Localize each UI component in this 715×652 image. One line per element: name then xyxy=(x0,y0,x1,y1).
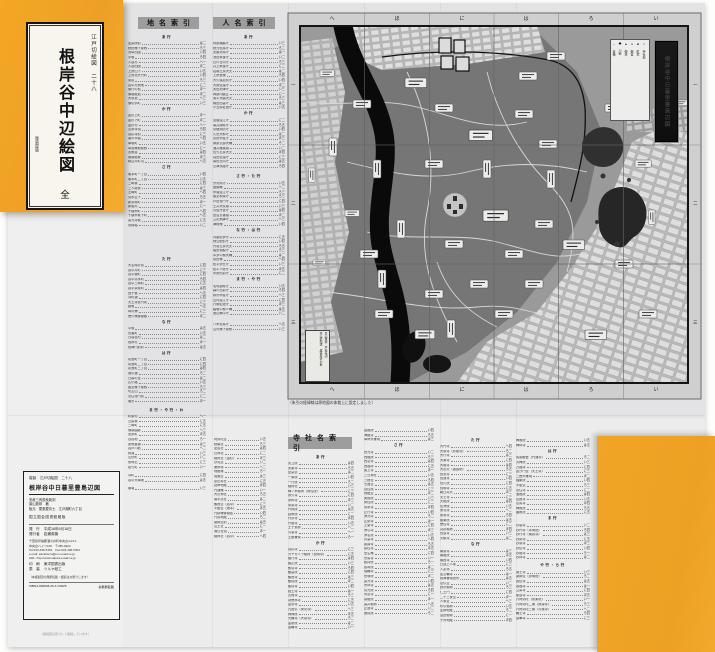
index-row: 浄心寺ほ三 xyxy=(364,528,434,533)
index-row: 大円寺へ四 xyxy=(440,444,512,449)
index-row: 福聚院い四 xyxy=(516,478,590,483)
place-index-column: あ行愛染院前は二秋田様下屋敷ろ三浅草田圃い四芋坂ろ四入谷村へ一入谷田圃ほ二上野山… xyxy=(128,33,206,491)
index-row: 愛染堂は二 xyxy=(288,470,354,475)
index-section-label: さ行 xyxy=(364,444,434,448)
index-row: 大塚道へ三 xyxy=(128,96,206,101)
index-row: 草間様抱屋敷に一 xyxy=(128,145,206,150)
index-row: 谷中村飛地に二 xyxy=(128,82,206,87)
index-row: 鍋島肥前守い四 xyxy=(213,239,285,244)
cover-title-label: 江戸切絵図 二十八 根岸谷中辺絵図 尾張屋版 全 xyxy=(26,22,104,210)
index-row: 願成寺い四 xyxy=(288,584,354,589)
index-row: 金杉上町ほ一 xyxy=(128,113,206,118)
index-row: 六阿弥陀（常楽院）い一 xyxy=(516,597,590,602)
index-row: 長運寺い四 xyxy=(440,476,512,481)
index-row: 新茶屋町ほ一 xyxy=(128,199,206,204)
person-index-column: あ行阿部播磨守い三秋元但馬守ろ二安藤対馬守は一池田筑後守い二石川日向守ろ三井上筑… xyxy=(213,33,285,331)
index-row: 加藤遠江守に二 xyxy=(213,118,285,123)
index-row: 薬王寺い三 xyxy=(516,570,590,575)
temple-index-column-3: た行大円寺へ四大泉寺（妙隆寺）ろ二大行寺は三大乗寺に四大雄寺は四大黒天（護国院）… xyxy=(440,436,512,622)
index-row: 梅照院ろ五 xyxy=(516,506,590,511)
index-section-label: ま行 xyxy=(516,517,590,521)
publisher-value: 岩瀬英機 xyxy=(44,532,58,537)
index-row: 西念寺は四 xyxy=(364,459,434,464)
index-row: 町屋村へ一 xyxy=(128,414,206,419)
index-row: 法住寺門前に二 xyxy=(128,394,206,399)
map-grid-label: ほ xyxy=(394,386,399,393)
temple-index-header: 寺社名索引 xyxy=(288,437,352,449)
index-row: 善光寺い四 xyxy=(364,578,434,583)
index-row: 久世大和守は二 xyxy=(213,132,285,137)
index-row: 善性寺ほ五 xyxy=(364,546,434,551)
index-row: 沼田稲荷に一 xyxy=(440,613,512,618)
index-row: 妙円寺（本明院）ろ四 xyxy=(516,527,590,532)
index-row: 永称寺ほ三 xyxy=(288,498,354,503)
index-row: 山内遠江守に四 xyxy=(213,297,285,302)
map-colophon-text: 井山能知述 尾張屋清七板 xyxy=(318,332,323,380)
index-row: 酒井雅楽頭い二 xyxy=(213,145,285,150)
map-panel: へ ほ に は ろ い へ ほ に は ろ い 一 二 三 一 二 三 □ 寺社… xyxy=(287,12,702,400)
index-row: 子育地蔵ほ四 xyxy=(440,617,512,622)
index-row: 妙行寺（南谷寺）は三 xyxy=(516,532,590,537)
index-row: 阿弥陀堂い五 xyxy=(214,437,266,442)
index-row: 妙雲寺い二 xyxy=(516,523,590,528)
index-row: 亀の甲橋へ四 xyxy=(128,136,206,141)
index-row: 金剛院は二 xyxy=(288,621,354,626)
index-row: 長安寺に三 xyxy=(440,472,512,477)
index-row: 善光寺坂に五 xyxy=(128,218,206,223)
cover-title: 根岸谷中辺絵図 xyxy=(53,48,77,174)
index-row: 実相院い三 xyxy=(364,496,434,501)
index-row: 立花飛騨守へ三 xyxy=(213,217,285,222)
index-row: 安藤対馬守は一 xyxy=(213,50,285,55)
index-row: 松平伊豆守い三 xyxy=(213,262,285,267)
index-row: 龍谷寺ほ五 xyxy=(516,593,590,598)
index-row: 延命地蔵ほ四 xyxy=(214,483,266,488)
index-row: 宗善寺い一 xyxy=(364,555,434,560)
index-row: 大泉寺（妙隆寺）ろ二 xyxy=(440,449,512,454)
index-row: 如意輪寺は一 xyxy=(440,571,512,576)
index-row: 円妙寺ほ四 xyxy=(288,516,354,521)
index-row: 三崎町に五 xyxy=(128,423,206,428)
index-row: 土井大炊頭い三 xyxy=(213,203,285,208)
map-grid-label: ろ xyxy=(588,386,593,393)
index-row: 毛利讃岐守い五 xyxy=(213,284,285,289)
index-row: 入定塚ろ五 xyxy=(440,567,512,572)
address-line: URL: http://www.sakura.email.ne.jp xyxy=(29,556,114,560)
index-row: 秋元但馬守ろ二 xyxy=(213,46,285,51)
index-row: 二十三夜堂ほ一 xyxy=(440,594,512,599)
temple-index-column-2: 金蔵院い四海蔵寺ろ五幸神大権現は三さ行西光寺い二西蔵院ろ三西念寺は四西福寺に五最… xyxy=(364,428,434,615)
index-row: 円珠院は五 xyxy=(288,507,354,512)
index-row: 南泉寺は三 xyxy=(440,548,512,553)
index-row: 柴田日向守は五 xyxy=(213,159,285,164)
index-row: 島津淡路守ろ四 xyxy=(213,164,285,169)
index-row: 徳性寺に二 xyxy=(440,522,512,527)
map-grid-label: ほ xyxy=(394,15,399,22)
index-row: 青雲寺へ四 xyxy=(364,537,434,542)
index-row: 長明寺に五 xyxy=(440,485,512,490)
cover-volume: 全 xyxy=(60,187,70,201)
index-row: 山王社に一 xyxy=(214,524,266,529)
map-grid-label: い xyxy=(653,15,658,22)
index-row: 惣構堀い二 xyxy=(128,222,206,227)
index-row: 大名時計前に四 xyxy=(128,263,206,268)
index-row: 正行寺い四 xyxy=(364,509,434,514)
map-grid-label: 二 xyxy=(693,201,698,207)
index-row: 新堀村に一 xyxy=(128,204,206,209)
index-row: 朝日弁天ほ三 xyxy=(440,490,512,495)
index-row: 金嶺寺い五 xyxy=(288,602,354,607)
index-row: 藤堂様下屋敷ろ三 xyxy=(128,385,206,390)
index-row: 柳通い三 xyxy=(128,451,206,456)
index-row: 御行の松ほ一 xyxy=(128,87,206,92)
index-row: 駒込片町境へ五 xyxy=(128,159,206,164)
index-row: 安立院は四 xyxy=(288,461,354,466)
index-row: 願正院い三 xyxy=(288,561,354,566)
index-row: 時の鐘に三 xyxy=(128,309,206,314)
index-row: 立善寺に四 xyxy=(516,588,590,593)
index-row: カヤカヅラ稲荷（長明寺）に五 xyxy=(288,552,354,557)
index-section-label: ま行・や行・わ xyxy=(128,409,206,413)
index-row: 初音町三丁目は四 xyxy=(128,366,206,371)
index-row: 日蓮上人塚に三 xyxy=(440,562,512,567)
map-grid-label: 一 xyxy=(693,82,698,88)
index-row: 長者町い五 xyxy=(128,331,206,336)
index-row: 馬頭観音（円通寺）ろ二 xyxy=(516,455,590,460)
index-row: 修性院に二 xyxy=(364,500,434,505)
map-title: 根岸谷中日暮里豊島辺図 xyxy=(663,56,671,128)
index-row: 三島神社い五 xyxy=(364,473,434,478)
index-row: 法昌寺い五 xyxy=(516,497,590,502)
index-row: 光輪寺（大泉寺）ろ二 xyxy=(288,616,354,621)
colophon-orig3: 板元 尾張屋清七 江戸麹町六丁目 xyxy=(29,507,114,512)
legend-item: ■ 町家 xyxy=(635,42,641,118)
index-row: 円隆寺い五 xyxy=(288,521,354,526)
index-row: 日暮里村は二 xyxy=(128,335,206,340)
publisher-label: 発行者 xyxy=(29,532,40,537)
colophon-series: 複製 江戸切絵図 二十八 xyxy=(29,476,114,481)
colophon-source: 国立国会図書館蔵版 xyxy=(29,515,114,520)
index-row: 金輪寺い一 xyxy=(288,625,354,630)
index-row: 南昌寺い四 xyxy=(440,558,512,563)
index-row: 養伝寺は五 xyxy=(516,579,590,584)
index-row: 黒鍬谷は四 xyxy=(128,150,206,155)
footnote: （複製図は原寸にて複製しています） xyxy=(40,632,91,636)
index-row: 金蔵院い四 xyxy=(364,428,434,433)
index-row: 宗林寺は五 xyxy=(364,583,434,588)
index-row: 正慶寺は一 xyxy=(364,519,434,524)
legend-item: ◆ 川筋 xyxy=(617,42,623,118)
index-section-label: た行 xyxy=(128,258,206,262)
index-row: 法善寺ほ四 xyxy=(516,501,590,506)
index-row: 池田筑後守い二 xyxy=(213,55,285,60)
index-row: 天王寺に三 xyxy=(440,495,512,500)
index-row: 円通庵い一 xyxy=(214,488,266,493)
index-row: 総持院ろ一 xyxy=(364,560,434,565)
index-row: 安楽寺ろ五 xyxy=(288,466,354,471)
index-row: 天王寺表門前に三 xyxy=(128,300,206,305)
map-grid-label: 三 xyxy=(291,320,296,326)
index-row: 法住寺に二 xyxy=(516,487,590,492)
index-row: 梅翁院い五 xyxy=(516,438,590,443)
index-row: 観音寺は三 xyxy=(288,575,354,580)
index-row: 夜啼石に三 xyxy=(128,460,206,465)
temple-index-column-1: あ行安立院は四安楽寺ろ五愛染堂は二一乗院い四一行院ろ二稲荷社い三梅ノ木稲荷（修性… xyxy=(288,453,354,630)
index-row: 自性院に三 xyxy=(364,487,434,492)
index-row: 東覚寺へ二 xyxy=(440,508,512,513)
index-row: 谷戸川筋へ二 xyxy=(128,446,206,451)
index-row: 上野山下い五 xyxy=(128,69,206,74)
index-row: 野沢稲荷ろ三 xyxy=(440,585,512,590)
index-section-label: た行 xyxy=(440,439,512,443)
colophon-title: 根岸谷中日暮里豊島辺図 xyxy=(29,483,114,495)
index-section-label: や行・ら行 xyxy=(516,564,590,568)
index-row: 上聖寺に四 xyxy=(364,523,434,528)
index-row: 天眼寺は二 xyxy=(440,536,512,541)
index-row: 井上筑後守に二 xyxy=(213,64,285,69)
map-grid-label: は xyxy=(523,15,528,22)
index-row: 閻魔堂は三 xyxy=(214,474,266,479)
index-row: 三峰社ろ四 xyxy=(364,477,434,482)
index-row: 稲荷社（谷中）へ四 xyxy=(214,533,266,538)
index-row: 三人屋敷は三 xyxy=(128,186,206,191)
index-row: 観智院に四 xyxy=(288,570,354,575)
map-grid-label: に xyxy=(459,15,464,22)
index-row: 阿部播磨守い三 xyxy=(213,41,285,46)
index-row: 突抜稲荷ほ四 xyxy=(440,527,512,532)
index-section-label: は行 xyxy=(516,450,590,454)
index-row: 観音堂（谷中）に三 xyxy=(214,501,266,506)
index-row: 岡部内膳正に一 xyxy=(213,92,285,97)
index-row: 大乗寺に四 xyxy=(440,458,512,463)
index-row: 九品仏（東覚寺）へ三 xyxy=(288,607,354,612)
legend-item: □ 寺社地 xyxy=(641,42,647,118)
index-row: 畑中通ろ二 xyxy=(128,371,206,376)
index-row: 幸神大権現は三 xyxy=(364,437,434,442)
index-row: 秋葉社ろ三 xyxy=(214,442,266,447)
index-row: 入谷田圃ほ二 xyxy=(128,64,206,69)
index-row: 寺町に四 xyxy=(128,473,206,478)
index-row: 芝崎町へ四 xyxy=(128,190,206,195)
index-row: 谷中大車坂は五 xyxy=(128,478,206,483)
index-row: 地蔵尊ろ一 xyxy=(214,469,266,474)
index-section-label: か行 xyxy=(128,108,206,112)
temple-index-column-0: 阿弥陀堂い五秋葉社ろ三愛宕社は四石神社に二稲荷社（金杉）ほ三妙見堂い二庚申塚へ二… xyxy=(214,437,266,538)
index-row: 門前地蔵ろ二 xyxy=(214,515,266,520)
index-row: 妙伝寺い四 xyxy=(516,546,590,551)
index-row: 万福寺に四 xyxy=(516,464,590,469)
index-section-label: ま行・や行 xyxy=(213,278,285,282)
index-row: 清水堂下ろ五 xyxy=(128,195,206,200)
index-row: 誠諦寺ろ五 xyxy=(364,542,434,547)
map-grid-label: へ xyxy=(329,386,334,393)
map-grid-label: 三 xyxy=(693,320,698,326)
index-row: 丹羽左京大夫ろ五 xyxy=(213,244,285,249)
index-row: 七面堂は五 xyxy=(364,482,434,487)
cover-publisher-mark: 尾張屋版 xyxy=(34,136,40,152)
index-row: 玄照寺ろ三 xyxy=(288,593,354,598)
index-row: 一行院ろ二 xyxy=(288,479,354,484)
index-row: 寿永寺ほ四 xyxy=(364,505,434,510)
index-row: 栄泉寺い二 xyxy=(288,502,354,507)
index-row: 願行寺は四 xyxy=(288,556,354,561)
index-row: 妙泉寺ほ三 xyxy=(516,541,590,546)
index-row: 妙見堂い二 xyxy=(214,460,266,465)
index-row: 真田信濃守に三 xyxy=(213,155,285,160)
index-row: 上野北大門町い四 xyxy=(128,73,206,78)
index-row: 興禅院ほ五 xyxy=(288,611,354,616)
index-row: 輪王寺ろ四 xyxy=(516,611,590,616)
legend-item: ─ 道橋 xyxy=(611,42,617,118)
index-row: 谷中片町に三 xyxy=(128,268,206,273)
index-row: 布引稲荷い五 xyxy=(440,604,512,609)
index-row: 佐竹右京大夫ほ四 xyxy=(213,150,285,155)
index-row: 塗師地蔵ろ二 xyxy=(440,608,512,613)
index-row: 恵比寿社に五 xyxy=(214,478,266,483)
index-row: 御手洗社は二 xyxy=(214,497,266,502)
index-row: 谷中坂町に四 xyxy=(128,272,206,277)
index-row: 亀井隠岐守ろ五 xyxy=(213,122,285,127)
index-row: 感応寺前に三 xyxy=(128,132,206,137)
index-row: 八木但馬守へ五 xyxy=(213,322,285,327)
index-row: 番場い三 xyxy=(128,486,206,491)
index-row: 太田摂津守い三 xyxy=(213,87,285,92)
index-row: 愛染院前は二 xyxy=(128,41,206,46)
index-row: 小笠原佐渡守い五 xyxy=(213,105,285,110)
index-row: 泉蔵院ほ一 xyxy=(364,597,434,602)
index-row: 海蔵寺ろ五 xyxy=(364,433,434,438)
index-section-label: あ行 xyxy=(288,456,354,460)
index-row: 伊達遠江守ろ三 xyxy=(213,190,285,195)
index-row: 西光寺い二 xyxy=(364,450,434,455)
map-grid-label: ろ xyxy=(588,15,593,22)
index-row: 榊原式部大輔ろ二 xyxy=(213,141,285,146)
index-row: 入谷村へ一 xyxy=(128,59,206,64)
index-row: 宮永町ほ五 xyxy=(128,432,206,437)
index-row: 御隠殿坂ほ三 xyxy=(128,155,206,160)
index-row: 速成院ろ二 xyxy=(364,611,434,616)
map-legend: □ 寺社地■ 町家● 御宮▲ 御林◆ 川筋─ 道橋 xyxy=(610,39,650,121)
index-row: 六郷佐渡守ほ三 xyxy=(213,302,285,307)
index-row: 王殿権現ろ一 xyxy=(288,534,354,539)
index-row: 藤堂和泉守ろ三 xyxy=(213,194,285,199)
index-row: 天龍院は四 xyxy=(440,499,512,504)
index-row: 螢沢ほ一 xyxy=(128,398,206,403)
index-row: 青雲寺へ一 xyxy=(288,530,354,535)
index-row: 稲荷社い三 xyxy=(288,484,354,489)
person-index-header: 人名索引 xyxy=(213,17,275,29)
temple-index-column-4: 梅翁院い五梅林寺は五は行馬頭観音（円通寺）ろ二芳梅院い三万福寺に四毘沙門堂（天王… xyxy=(516,438,590,620)
index-row: 百姓地ろ一 xyxy=(128,437,206,442)
index-row: 御隠殿道ほ二 xyxy=(128,92,206,97)
map-grid-label: い xyxy=(653,386,658,393)
index-row: 坊主山ろ二 xyxy=(128,389,206,394)
index-row: 黒田甲斐守ほ三 xyxy=(213,136,285,141)
index-row: 御切手町い三 xyxy=(128,101,206,106)
index-row: 梅林寺は五 xyxy=(516,443,590,448)
index-section-label: か行 xyxy=(213,112,285,116)
index-row: 山内様下屋敷い三 xyxy=(213,326,285,331)
index-row: 金杉下町ほ二 xyxy=(128,118,206,123)
index-row: 中坂は五 xyxy=(128,326,206,331)
index-row: 西蔵院ろ三 xyxy=(364,454,434,459)
index-row: 瑞輪寺に三 xyxy=(364,569,434,574)
place-index-header: 地名索引 xyxy=(138,17,199,29)
index-row: 不動堂（坂本）ほ五 xyxy=(214,506,266,511)
index-row: 大久保加賀守い四 xyxy=(213,78,285,83)
index-row: 醍醐様へ二 xyxy=(213,185,285,190)
index-row: 芋坂ろ四 xyxy=(128,55,206,60)
index-row: 愛宕社は四 xyxy=(214,446,266,451)
index-row: 不動堂ろ三 xyxy=(516,483,590,488)
index-section-label: は行 xyxy=(128,352,206,356)
index-row: 豆腐坂に五 xyxy=(128,418,206,423)
fold-line xyxy=(8,415,705,416)
index-row: 上野宮様ろ四 xyxy=(213,73,285,78)
photo-of-map-sheet: 地名索引 人名索引 寺社名索引 あ行愛染院前は二秋田様下屋敷ろ三浅草田圃い四芋坂… xyxy=(0,0,715,652)
index-row: 寺町通に四 xyxy=(128,295,206,300)
index-row: 広小路い五 xyxy=(128,380,206,385)
index-row: 津軽様い四 xyxy=(213,222,285,227)
index-row: 奥平大膳大夫ろ三 xyxy=(213,96,285,101)
index-row: 団子坂へ五 xyxy=(128,290,206,295)
map-grid-label: へ xyxy=(329,15,334,22)
index-row: 芳梅院い三 xyxy=(516,460,590,465)
index-row: 王子道標へ二 xyxy=(288,525,354,530)
index-row: 宗対馬守い五 xyxy=(213,180,285,185)
index-row: 車坂町い五 xyxy=(128,141,206,146)
index-row: 石川日向守ろ三 xyxy=(213,59,285,64)
index-row: 初音町一丁目に四 xyxy=(128,357,206,362)
index-row: 毘沙門堂（天王寺）に三 xyxy=(516,469,590,474)
index-row: 延命院に二 xyxy=(288,512,354,517)
index-row: 遍照院に五 xyxy=(516,510,590,515)
index-row: 坂本町一丁目い四 xyxy=(128,172,206,177)
index-row: 浅草田圃い四 xyxy=(128,50,206,55)
index-row: 堀田相模守ろ三 xyxy=(213,248,285,253)
colophon-box: 複製 江戸切絵図 二十八 根岸谷中日暮里豊島辺図 安政三丙辰秋新刻 景山致恭 著… xyxy=(23,471,120,620)
index-row: 金杉村へ一 xyxy=(128,122,206,127)
index-row: 織田出雲守は三 xyxy=(213,101,285,106)
map-grid-label: 二 xyxy=(291,201,296,207)
index-row: 最上寺ほ一 xyxy=(364,468,434,473)
index-row: 一乗院い四 xyxy=(288,475,354,480)
index-row: 宝蔵院は四 xyxy=(516,492,590,497)
index-row: 藤乗院は五 xyxy=(440,517,512,522)
index-row: 世尊院ほ二 xyxy=(364,574,434,579)
index-row: 徳川様御隠殿ほ二 xyxy=(128,313,206,318)
index-row: 脇坂中務少輔は五 xyxy=(213,307,285,312)
index-row: 妙隆寺ろ一 xyxy=(516,550,590,555)
index-row: 全生庵に四 xyxy=(364,551,434,556)
map-title-cartouche: 根岸谷中日暮里豊島辺図 xyxy=(654,40,679,143)
index-row: 三崎坂に四 xyxy=(128,181,206,186)
index-row: 庚申塚へ二 xyxy=(214,465,266,470)
index-row: 門跡様御隠居い四 xyxy=(214,511,266,516)
index-row: 千駄木坂下町へ五 xyxy=(128,213,206,218)
map-colophon-text: 景山致恭 戸松昌訓 xyxy=(323,332,328,380)
legend-item: ● 御宮 xyxy=(629,42,635,118)
index-section-label: さ行・た行 xyxy=(213,175,285,179)
index-row: 千駄木町へ四 xyxy=(128,209,206,214)
no-reprint-mark: 禁無断転載 xyxy=(99,584,114,589)
index-row: 東漸寺ろ四 xyxy=(440,513,512,518)
index-row: 妙林寺は二 xyxy=(516,555,590,560)
index-row: 浄名院い五 xyxy=(364,532,434,537)
index-row: 初音町二丁目に四 xyxy=(128,362,206,367)
isbn: ISBN4-900838-29-4 C0625 xyxy=(29,584,67,589)
cover-series: 江戸切絵図 二十八 xyxy=(89,34,97,93)
